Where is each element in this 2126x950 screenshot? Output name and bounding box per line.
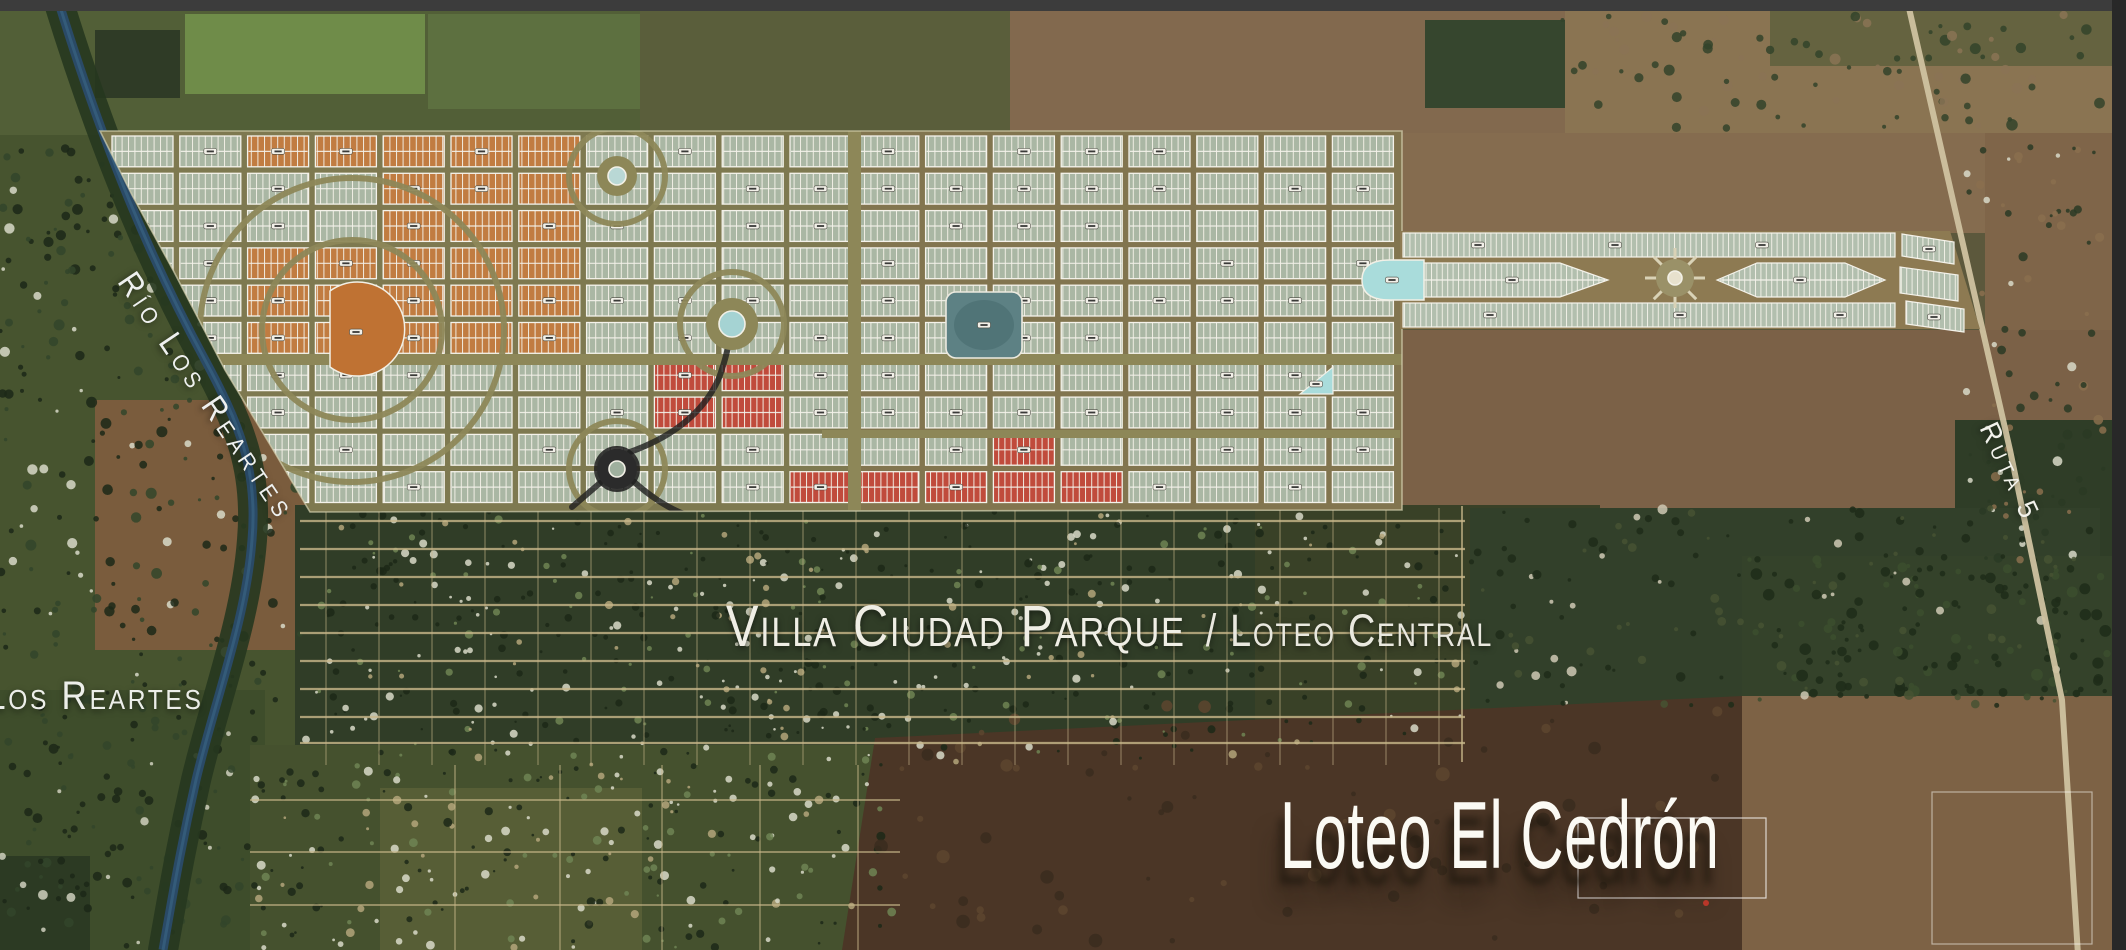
- subdivision-plan: [100, 128, 1402, 517]
- avenue: [100, 354, 1402, 365]
- label-loteo-el-cedron: Loteo El Cedrón: [1280, 788, 1719, 884]
- roundabout: [706, 298, 758, 350]
- roundabout: [1645, 248, 1705, 308]
- roundabout: [597, 449, 637, 489]
- aerial-masterplan-image: Villa Ciudad Parque / Loteo Central Lote…: [0, 0, 2126, 950]
- label-villa-ciudad-parque: Villa Ciudad Parque / Loteo Central: [726, 598, 1493, 656]
- top-window-bar: [0, 0, 2126, 11]
- red-marker-dot: [1703, 900, 1709, 906]
- label-villa-ciudad-parque-text: Villa Ciudad Parque: [726, 598, 1186, 656]
- roundabout: [597, 156, 637, 196]
- avenue: [848, 131, 861, 510]
- label-los-reartes: Los Reartes: [0, 676, 204, 716]
- label-loteo-central-text: / Loteo Central: [1206, 608, 1493, 653]
- satellite-map-canvas: [0, 0, 2126, 950]
- avenue: [822, 430, 1400, 438]
- right-window-bar: [2112, 0, 2126, 950]
